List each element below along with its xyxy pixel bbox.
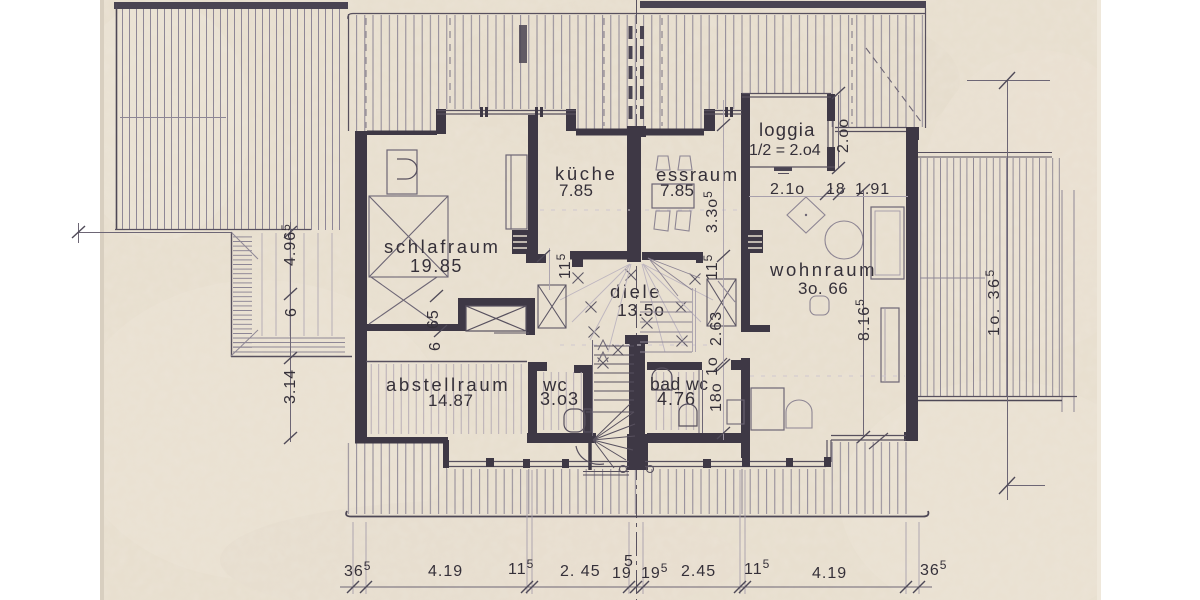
svg-text:wohnraum: wohnraum: [769, 259, 877, 280]
svg-text:19.85: 19.85: [410, 256, 463, 276]
svg-text:diele: diele: [610, 281, 662, 302]
svg-text:6: 6: [283, 307, 300, 317]
svg-text:2.1o: 2.1o: [770, 181, 805, 198]
svg-text:19: 19: [612, 565, 632, 582]
svg-text:2.45: 2.45: [681, 563, 716, 580]
svg-text:1o. 365: 1o. 365: [983, 267, 1003, 336]
svg-text:4.19: 4.19: [812, 565, 847, 582]
svg-text:4.76: 4.76: [657, 389, 696, 409]
svg-text:7.85: 7.85: [559, 181, 593, 200]
svg-text:65: 65: [425, 309, 442, 329]
svg-text:4.19: 4.19: [428, 563, 463, 580]
svg-text:schlafraum: schlafraum: [384, 236, 500, 257]
svg-text:2.63: 2.63: [708, 311, 725, 346]
svg-text:3.o3: 3.o3: [540, 389, 579, 409]
svg-text:2.oo: 2.oo: [835, 118, 852, 153]
svg-text:1/2 = 2.o4: 1/2 = 2.o4: [749, 142, 821, 159]
svg-text:3.14: 3.14: [282, 369, 299, 404]
svg-text:14.87: 14.87: [428, 391, 474, 410]
svg-text:18o: 18o: [708, 382, 725, 412]
svg-text:3o. 66: 3o. 66: [798, 279, 848, 298]
svg-text:1.91: 1.91: [855, 181, 890, 198]
svg-text:6: 6: [427, 341, 444, 351]
svg-text:13.5o: 13.5o: [617, 300, 665, 320]
svg-text:loggia: loggia: [759, 119, 816, 140]
svg-text:2. 45: 2. 45: [560, 563, 601, 580]
svg-text:1o: 1o: [704, 356, 721, 376]
